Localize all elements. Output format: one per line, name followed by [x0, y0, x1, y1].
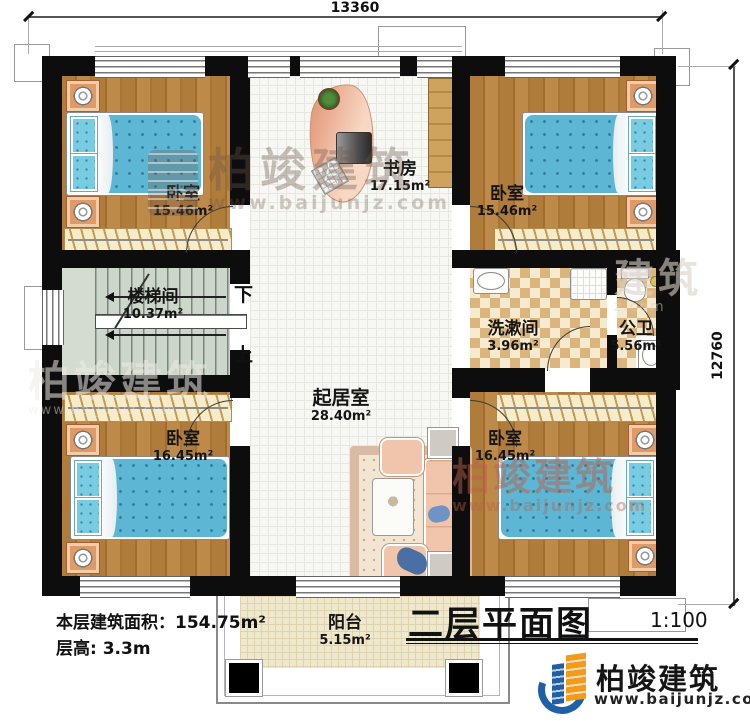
- nightstand: [66, 542, 100, 574]
- window: [417, 56, 452, 78]
- brand-logo-icon: [538, 652, 590, 714]
- pillow: [629, 154, 655, 191]
- wardrobe: [496, 394, 658, 422]
- sink-basin: [477, 272, 505, 290]
- wall: [230, 392, 250, 398]
- nightstand: [626, 80, 660, 112]
- stair-treads-lower: [95, 329, 230, 375]
- balcony-column: [226, 660, 262, 696]
- wall: [42, 576, 80, 596]
- balcony-column: [446, 660, 482, 696]
- extension-line: [28, 18, 29, 54]
- pillow: [71, 154, 97, 191]
- wall: [42, 56, 62, 290]
- balcony-door: [296, 576, 400, 598]
- room-label-living: 起居室 28.40m²: [286, 388, 396, 424]
- sheet-scale: 1:100: [650, 608, 708, 632]
- wall: [400, 56, 417, 76]
- nightstand: [66, 424, 100, 456]
- room-label-bathroom: 公卫 5.56m²: [586, 320, 686, 354]
- window: [505, 56, 620, 78]
- plant: [318, 88, 340, 110]
- window: [80, 576, 190, 598]
- room-label-balcony: 阳台 5.15m²: [290, 614, 400, 648]
- window-sill-line: [95, 51, 462, 52]
- wall: [452, 446, 470, 576]
- dimension-label-top: 13360: [320, 0, 390, 16]
- pillow: [629, 117, 655, 154]
- stair-down-label: 下: [234, 280, 253, 307]
- stair-window-sill: [24, 286, 44, 350]
- wall: [42, 345, 62, 596]
- wall: [452, 392, 470, 398]
- washroom-sink: [473, 268, 509, 294]
- room-label-study: 书房 17.15m²: [345, 160, 455, 194]
- wall: [607, 268, 617, 295]
- wall: [452, 368, 545, 392]
- room-label-bedroom-bl: 卧室 16.45m²: [128, 430, 238, 464]
- laundry-shower-unit: [570, 268, 607, 300]
- wall: [452, 56, 505, 76]
- logo-building-blue: [552, 663, 564, 705]
- bay-window-outline: [378, 26, 466, 60]
- window: [42, 290, 64, 345]
- nightstand: [66, 196, 100, 228]
- wall: [620, 576, 676, 596]
- nightstand: [626, 196, 660, 228]
- wall: [290, 56, 300, 76]
- dimension-line-right: [733, 66, 735, 606]
- dimension-label-right: 12760: [710, 318, 732, 394]
- bed: [70, 456, 230, 540]
- pillow: [627, 498, 653, 535]
- wall: [230, 446, 250, 576]
- floor-plan: 下 上: [0, 0, 750, 721]
- pillow: [75, 461, 101, 498]
- room-label-stairwell: 楼梯间 10.37m²: [98, 288, 208, 322]
- stair-up-label: 上: [234, 340, 253, 367]
- room-label-washroom: 洗漱间 3.96m²: [458, 320, 568, 354]
- stair-arrow: [100, 330, 114, 340]
- wall: [190, 576, 296, 596]
- wall: [590, 368, 676, 392]
- wall: [400, 576, 505, 596]
- window: [95, 56, 205, 78]
- window-sill-line: [95, 46, 462, 47]
- armchair: [380, 438, 424, 476]
- wall: [205, 56, 248, 76]
- bed-blanket: [501, 459, 627, 537]
- window: [248, 56, 290, 78]
- brand-url: www.baijunjz.com: [594, 690, 750, 708]
- room-label-bedroom-br: 卧室 16.45m²: [450, 430, 560, 464]
- title-underline: [406, 643, 698, 644]
- extension-line: [678, 604, 736, 605]
- pillow: [75, 498, 101, 535]
- floor-height-note: 层高: 3.3m: [56, 634, 151, 659]
- title-underline: [406, 638, 698, 641]
- window: [300, 56, 400, 78]
- wardrobe: [494, 228, 658, 251]
- bed: [522, 112, 660, 196]
- window: [505, 576, 620, 598]
- pillow: [71, 117, 97, 154]
- watermark-logo-icon: [148, 150, 198, 216]
- wall: [62, 375, 230, 392]
- stair-landing: [62, 268, 96, 375]
- floor-area-note: 本层建筑面积：154.75m²: [56, 608, 266, 633]
- nightstand: [66, 80, 100, 112]
- dimension-line-top: [28, 16, 662, 18]
- bed: [498, 456, 658, 540]
- coffee-table: [372, 478, 414, 536]
- pillow: [627, 461, 653, 498]
- bed-blanket: [101, 459, 227, 537]
- room-label-bedroom-tr: 卧室 15.46m²: [452, 185, 562, 219]
- stair-direction-line: [108, 334, 226, 336]
- logo-building-orange: [566, 653, 586, 702]
